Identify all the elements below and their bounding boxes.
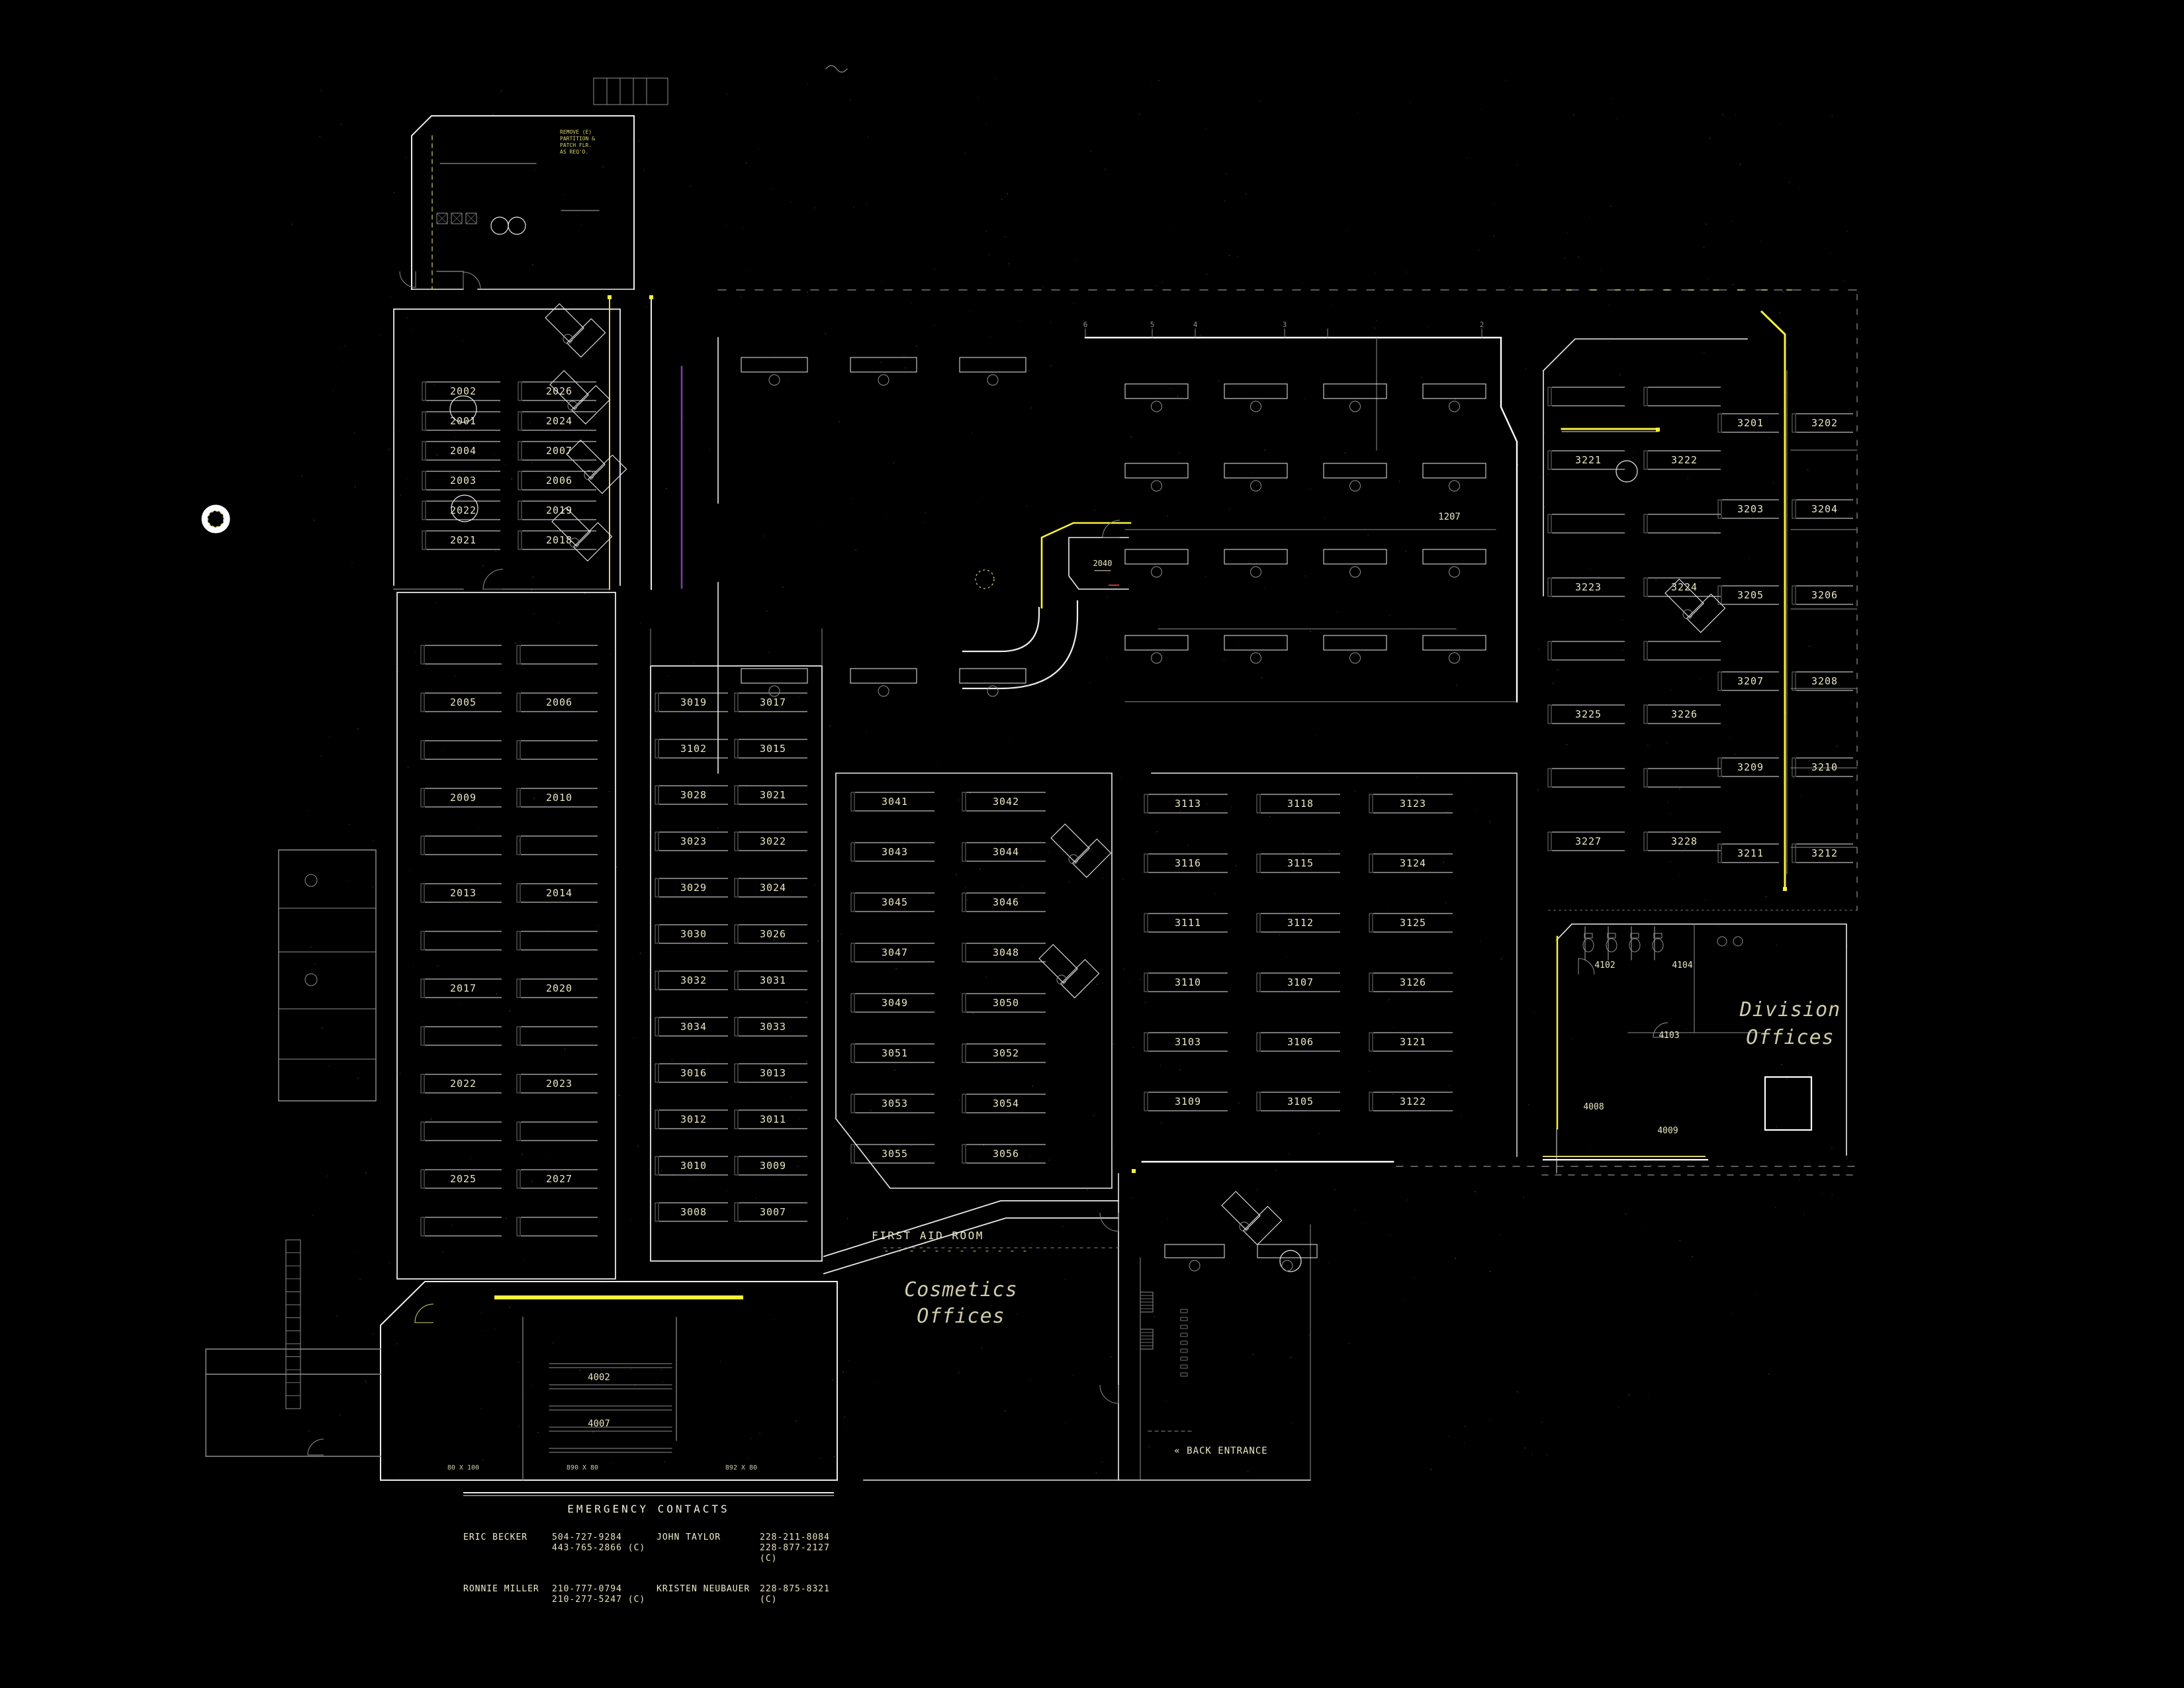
noise-speck <box>1206 128 1207 129</box>
noise-speck <box>1399 481 1400 482</box>
chair-small <box>1181 1349 1187 1352</box>
desk-end-panel <box>517 741 520 759</box>
noise-speck <box>320 756 322 757</box>
desk-end-panel <box>962 1094 966 1113</box>
noise-speck <box>1789 182 1790 183</box>
cubicle-number: 3023 <box>680 835 707 847</box>
noise-speck <box>1179 1069 1181 1070</box>
noise-speck <box>531 462 533 463</box>
noise-speck <box>845 1427 846 1428</box>
grid-marker-dot <box>608 295 612 299</box>
noise-speck <box>436 454 437 455</box>
desk-end-panel <box>517 931 520 950</box>
contact-phones: 210-777-0794210-277-5247 (C) <box>552 1584 653 1605</box>
noise-speck <box>1633 451 1635 452</box>
cubicle-number: 2025 <box>450 1173 477 1185</box>
cubicle-number: 3034 <box>680 1021 707 1033</box>
noise-speck <box>807 292 808 293</box>
desk-end-panel <box>1644 769 1647 787</box>
noise-speck <box>870 1110 872 1111</box>
noise-speck <box>839 421 840 422</box>
desk-end-panel <box>1644 451 1647 469</box>
noise-speck <box>1005 1411 1006 1412</box>
cubicle-number: 3010 <box>680 1160 707 1172</box>
noise-speck <box>355 1251 356 1252</box>
desk <box>741 669 807 683</box>
noise-speck <box>1567 232 1568 233</box>
noise-speck <box>978 502 979 503</box>
noise-speck <box>322 1027 324 1029</box>
chair <box>1449 481 1460 491</box>
desk-end-panel <box>1548 705 1551 724</box>
noise-speck <box>796 1421 797 1422</box>
grid-marker-dot <box>649 295 653 299</box>
noise-speck <box>847 1218 848 1219</box>
desk <box>850 357 917 372</box>
noise-speck <box>1388 999 1390 1000</box>
noise-speck <box>624 1096 625 1097</box>
noise-speck <box>1430 1469 1432 1470</box>
noise-speck <box>1310 489 1311 490</box>
noise-speck <box>1157 831 1158 833</box>
cubicle-number: 2014 <box>546 887 572 899</box>
chair-small <box>1181 1325 1187 1329</box>
noise-speck <box>1788 395 1790 396</box>
noise-speck <box>1189 1321 1191 1323</box>
noise-speck <box>1367 535 1369 536</box>
desk-end-panel <box>1718 672 1721 690</box>
noise-speck <box>408 767 409 768</box>
noise-speck <box>495 1328 496 1329</box>
chair <box>1251 401 1261 412</box>
noise-speck <box>964 153 966 154</box>
noise-speck <box>1302 283 1304 284</box>
noise-speck <box>1670 689 1672 690</box>
desk-end-panel <box>735 786 738 804</box>
cubicle-number: 3026 <box>760 928 786 940</box>
desk-end-panel <box>421 884 424 902</box>
desk-end-panel <box>735 832 738 851</box>
noise-speck <box>396 1343 398 1344</box>
emergency-contacts-list: ERIC BECKER504-727-9284443-765-2866 (C)J… <box>463 1532 834 1605</box>
noise-speck <box>1711 530 1713 532</box>
noise-speck <box>1732 220 1733 222</box>
noise-speck <box>414 652 416 653</box>
emergency-contacts-panel: EMERGENCY CONTACTS ERIC BECKER504-727-92… <box>463 1492 834 1605</box>
desk-end-panel <box>517 693 520 712</box>
noise-speck <box>1260 101 1261 102</box>
noise-speck <box>1704 900 1706 901</box>
cubicle-number: 3043 <box>882 846 908 858</box>
noise-speck <box>815 884 816 886</box>
noise-speck <box>310 947 312 948</box>
door-swing <box>1100 1213 1118 1231</box>
cubicle-number: 3110 <box>1175 976 1201 988</box>
noise-speck <box>1830 252 1831 254</box>
desk-end-panel <box>1257 973 1260 992</box>
noise-speck <box>400 494 401 496</box>
cubicle-number: 3112 <box>1287 917 1314 929</box>
noise-speck <box>1205 576 1206 577</box>
noise-speck <box>349 824 350 825</box>
noise-speck <box>1029 1155 1030 1156</box>
noise-speck <box>709 449 710 450</box>
cubicle-number: 3222 <box>1671 454 1698 466</box>
noise-speck <box>842 1372 844 1373</box>
noise-speck <box>1355 1210 1356 1211</box>
noise-speck <box>1547 1455 1548 1456</box>
round-table <box>508 217 525 234</box>
noise-speck <box>1246 193 1247 195</box>
noise-speck <box>1688 477 1689 479</box>
desk-end-panel <box>655 925 659 943</box>
noise-speck <box>495 551 496 553</box>
desk-end-panel <box>517 1122 520 1141</box>
noise-speck <box>790 202 792 203</box>
noise-speck <box>1480 941 1481 942</box>
noise-speck <box>893 462 894 463</box>
noise-speck <box>1588 216 1590 218</box>
chair <box>987 375 998 385</box>
noise-speck <box>1156 286 1158 287</box>
noise-speck <box>327 1176 328 1177</box>
cubicle-number: 3013 <box>760 1067 786 1079</box>
cubicle-number: 3116 <box>1175 857 1201 869</box>
noise-speck <box>637 1145 639 1147</box>
legend-title: EMERGENCY CONTACTS <box>463 1503 834 1515</box>
desk-end-panel <box>1144 854 1148 872</box>
chair <box>1350 567 1361 577</box>
cubicle-number: 3221 <box>1575 454 1602 466</box>
noise-speck <box>1279 935 1280 936</box>
plan-label: « BACK ENTRANCE <box>1174 1446 1267 1456</box>
noise-speck <box>1679 788 1680 790</box>
noise-speck <box>842 77 844 79</box>
noise-speck <box>339 348 340 349</box>
desk-end-panel <box>1718 414 1721 432</box>
noise-speck <box>774 1319 775 1321</box>
cubicle-number: 3211 <box>1737 847 1764 859</box>
chair <box>1350 401 1361 412</box>
noise-speck <box>1069 881 1070 882</box>
noise-speck <box>1608 341 1610 342</box>
noise-speck <box>505 464 506 465</box>
chair <box>1282 1260 1293 1271</box>
noise-speck <box>805 1060 807 1062</box>
noise-speck <box>666 488 667 489</box>
noise-speck <box>1612 98 1613 99</box>
noise-speck <box>1489 1271 1490 1272</box>
noise-speck <box>1048 1160 1050 1161</box>
door-swing <box>483 569 503 589</box>
noise-speck <box>766 610 768 612</box>
desk-end-panel <box>517 979 520 998</box>
noise-speck <box>437 966 439 967</box>
diagonal-desk-cluster <box>1051 824 1111 878</box>
chair <box>1251 567 1261 577</box>
noise-speck <box>1847 946 1848 947</box>
noise-speck <box>727 94 728 95</box>
noise-speck <box>441 1284 443 1286</box>
noise-speck <box>1799 187 1801 188</box>
noise-speck <box>668 675 669 677</box>
noise-speck <box>1850 702 1852 704</box>
cubicle-number: 3007 <box>760 1206 786 1218</box>
noise-speck <box>1590 569 1591 570</box>
noise-speck <box>1457 684 1458 686</box>
noise-speck <box>344 346 345 347</box>
noise-speck <box>1170 228 1171 230</box>
noise-speck <box>1502 957 1503 958</box>
noise-speck <box>493 454 494 455</box>
wall-line <box>279 850 376 1101</box>
chair <box>1251 481 1261 491</box>
wall-line <box>651 666 822 1261</box>
desk-end-panel <box>735 971 738 990</box>
noise-speck <box>894 1070 895 1071</box>
noise-speck <box>966 1105 968 1106</box>
desk-end-panel <box>655 878 659 897</box>
cubicle-number: 2006 <box>546 475 572 487</box>
chair-small <box>1181 1317 1187 1321</box>
noise-speck <box>1544 432 1545 433</box>
plan-label: 4102 <box>1594 961 1615 970</box>
desk <box>1423 549 1486 564</box>
noise-speck <box>314 520 315 521</box>
noise-speck <box>1087 1190 1089 1191</box>
noise-speck <box>518 1362 520 1363</box>
fixture <box>305 974 317 986</box>
noise-speck <box>1669 862 1670 863</box>
desk-end-panel <box>962 943 966 962</box>
wall-line <box>523 1317 676 1480</box>
noise-speck <box>1846 231 1848 232</box>
desk <box>1039 945 1077 983</box>
noise-speck <box>1096 1472 1097 1474</box>
cubicle-number: 3047 <box>882 947 908 959</box>
noise-speck <box>1031 407 1032 408</box>
noise-speck <box>1328 1262 1329 1264</box>
noise-speck <box>619 1095 620 1096</box>
desk-end-panel <box>518 442 522 460</box>
noise-speck <box>1238 643 1239 644</box>
noise-speck <box>340 124 341 125</box>
noise-speck <box>1001 199 1003 200</box>
noise-speck <box>972 433 973 434</box>
cubicle-number: 3227 <box>1575 835 1602 847</box>
door-swing <box>1578 959 1594 974</box>
noise-speck <box>1842 908 1843 909</box>
noise-speck <box>1161 282 1163 283</box>
noise-speck <box>337 365 338 367</box>
noise-speck <box>1766 896 1767 898</box>
noise-speck <box>609 791 610 792</box>
cubicle-number: 3111 <box>1175 917 1201 929</box>
cubicle-number: 2004 <box>450 445 477 457</box>
noise-speck <box>1617 118 1618 120</box>
noise-speck <box>841 934 842 935</box>
noise-speck <box>683 417 684 418</box>
noise-speck <box>1807 469 1809 471</box>
noise-speck <box>1428 326 1429 328</box>
noise-speck <box>532 577 533 578</box>
desk-end-panel <box>1792 500 1796 518</box>
desk-end-panel <box>421 645 424 664</box>
noise-speck <box>1773 483 1774 484</box>
chair <box>1449 567 1460 577</box>
noise-speck <box>1544 506 1545 508</box>
noise-speck <box>398 431 400 432</box>
wall-line <box>397 592 615 1279</box>
desk-end-panel <box>421 788 424 807</box>
desk-end-panel <box>421 836 424 855</box>
noise-speck <box>693 663 694 664</box>
cubicle-number: 3052 <box>993 1047 1019 1059</box>
cubicle-number: 2023 <box>546 1078 572 1090</box>
noise-speck <box>850 100 851 101</box>
noise-speck <box>959 800 960 801</box>
floorplan-canvas[interactable]: 2002202620012024200420072003200620222019… <box>0 0 2184 1688</box>
cubicle-number: 3050 <box>993 997 1019 1009</box>
noise-speck <box>365 1380 366 1382</box>
cubicle-number: 3121 <box>1400 1036 1426 1048</box>
noise-speck <box>1787 1078 1788 1080</box>
noise-speck <box>749 269 750 270</box>
plan-label: Offices <box>917 1305 1005 1328</box>
noise-speck <box>829 726 831 727</box>
cubicle-number: 2010 <box>546 792 572 804</box>
noise-speck <box>1179 453 1180 454</box>
noise-speck <box>1160 1065 1161 1066</box>
contact-phones: 228-211-8084228-877-2127 (C) <box>760 1532 846 1564</box>
desk-end-panel <box>735 1017 738 1036</box>
cubicle-number: 3123 <box>1400 798 1426 810</box>
noise-speck <box>1832 116 1833 117</box>
noise-speck <box>1455 1258 1456 1259</box>
noise-speck <box>354 432 355 434</box>
noise-speck <box>1275 1170 1277 1172</box>
desk-end-panel <box>422 442 426 460</box>
noise-speck <box>1132 1047 1134 1049</box>
cubicle-number: 3033 <box>760 1021 786 1033</box>
wall-line <box>206 1349 381 1456</box>
noise-speck <box>584 534 585 536</box>
noise-speck <box>1469 781 1471 782</box>
noise-speck <box>351 562 353 563</box>
noise-speck <box>743 228 744 229</box>
noise-speck <box>1692 1256 1693 1257</box>
desk-end-panel <box>655 1203 659 1221</box>
noise-speck <box>1844 281 1845 282</box>
noise-speck <box>1376 320 1377 321</box>
noise-speck <box>1248 1471 1249 1472</box>
noise-speck <box>1065 1423 1066 1425</box>
wall-line <box>1765 1077 1811 1130</box>
noise-speck <box>1249 1246 1250 1248</box>
noise-speck <box>1799 1180 1800 1181</box>
noise-speck <box>741 297 742 298</box>
noise-speck <box>1449 1086 1450 1087</box>
desk-end-panel <box>851 1094 854 1113</box>
chair <box>878 375 889 385</box>
noise-speck <box>799 1182 801 1184</box>
noise-speck <box>1416 776 1417 777</box>
plan-label: 890 X 80 <box>567 1464 598 1472</box>
noise-speck <box>782 586 784 588</box>
noise-speck <box>1837 746 1838 747</box>
cubicle-number: 3053 <box>882 1098 908 1109</box>
noise-speck <box>388 449 390 450</box>
cubicle-number: 3046 <box>993 896 1019 908</box>
noise-speck <box>972 1013 974 1014</box>
sink <box>1733 937 1743 946</box>
noise-speck <box>978 97 979 99</box>
noise-speck <box>820 1458 821 1459</box>
noise-speck <box>989 254 990 256</box>
noise-speck <box>1403 1300 1404 1301</box>
desk-end-panel <box>1644 641 1647 660</box>
fixture <box>305 874 317 886</box>
cubicle-number: 3203 <box>1737 503 1764 515</box>
noise-speck <box>1369 479 1371 481</box>
desk-end-panel <box>1257 1092 1260 1111</box>
noise-speck <box>990 336 991 338</box>
noise-speck <box>1443 862 1444 863</box>
floorplan-svg: 2002202620012024200420072003200620222019… <box>0 0 2184 1688</box>
wall-line <box>1152 773 1517 1156</box>
noise-speck <box>751 1438 752 1439</box>
wall-line <box>1762 312 1785 888</box>
plan-label: FIRST AID ROOM <box>872 1229 984 1242</box>
desk-end-panel <box>735 739 738 758</box>
desk-end-panel <box>1548 387 1551 406</box>
cubicle-number: 3122 <box>1400 1096 1426 1107</box>
noise-speck <box>1375 328 1376 329</box>
noise-speck <box>532 264 533 265</box>
noise-speck <box>533 545 535 547</box>
ring-symbol-inner <box>208 511 224 527</box>
chair <box>987 686 998 696</box>
contact-name: JOHN TAYLOR <box>657 1532 756 1564</box>
desk-end-panel <box>1369 1092 1373 1111</box>
desk <box>960 669 1026 683</box>
noise-speck <box>958 1372 960 1374</box>
desk-end-panel <box>422 471 426 490</box>
noise-speck <box>755 1198 756 1199</box>
hatch-box <box>286 1240 300 1409</box>
noise-speck <box>834 1456 835 1458</box>
noise-speck <box>1102 1462 1103 1463</box>
noise-speck <box>640 953 641 954</box>
noise-speck <box>530 1383 531 1385</box>
chair <box>1449 653 1460 663</box>
noise-speck <box>1489 821 1490 823</box>
noise-speck <box>514 455 515 456</box>
noise-speck <box>1107 597 1108 598</box>
cubicle-number: 3019 <box>680 696 707 708</box>
noise-speck <box>405 157 406 158</box>
noise-speck <box>1342 851 1343 852</box>
noise-speck <box>1004 236 1005 238</box>
desk-end-panel <box>421 741 424 759</box>
noise-speck <box>577 215 578 216</box>
cubicle-number: 3044 <box>993 846 1019 858</box>
desk-end-panel <box>421 931 424 950</box>
noise-speck <box>1729 737 1730 739</box>
desk <box>1125 635 1188 650</box>
desk-end-panel <box>517 1170 520 1188</box>
noise-speck <box>1091 151 1092 152</box>
